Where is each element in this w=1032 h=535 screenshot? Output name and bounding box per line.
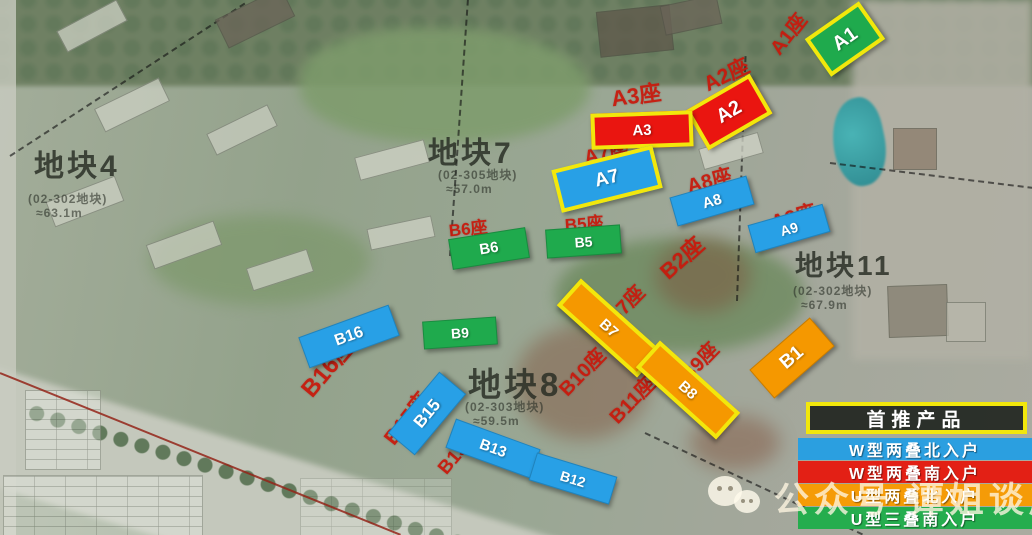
- legend-item-1: W型两叠北入户: [798, 438, 1032, 460]
- plot-code: (02-302地块): [28, 190, 107, 207]
- building-footprint: [946, 302, 986, 342]
- plot-name-地块11: 地块11: [795, 244, 893, 284]
- building-footprint: [887, 284, 949, 338]
- block-label: B8: [675, 377, 701, 402]
- building-footprint: [893, 128, 937, 170]
- block-B5[interactable]: B5: [545, 224, 622, 258]
- drawing-table: [25, 390, 101, 470]
- plot-name-地块4: 地块4: [34, 141, 120, 185]
- block-label: B12: [558, 467, 587, 490]
- watermark: 公众号 谭姐谈房: [708, 472, 1032, 523]
- block-label: A1: [828, 22, 862, 56]
- block-label: B9: [451, 324, 470, 341]
- block-label: A9: [778, 218, 800, 238]
- block-label: B13: [477, 435, 509, 460]
- plot-height: ≈57.0m: [446, 182, 493, 196]
- block-label: B1: [776, 342, 809, 375]
- block-label: B7: [596, 315, 622, 340]
- site-plan-map: 地块4(02-302地块)≈63.1m地块7(02-305地块)≈57.0m地块…: [0, 0, 1032, 535]
- block-A3[interactable]: A3: [590, 110, 693, 150]
- block-label: A2: [712, 96, 746, 129]
- plot-code: (02-305地块): [438, 166, 517, 183]
- block-label: B6: [478, 238, 500, 258]
- block-label: A3: [632, 121, 652, 139]
- block-label: B5: [574, 232, 593, 249]
- legend-title: 首推产品: [806, 402, 1027, 434]
- plot-code: (02-302地块): [793, 282, 872, 299]
- wechat-icon: [708, 476, 764, 520]
- drawing-table: [3, 475, 203, 535]
- drawing-sheet-edge: [0, 0, 16, 535]
- watermark-text: 公众号 谭姐谈房: [774, 472, 1032, 523]
- block-label: B15: [409, 395, 444, 432]
- plot-code: (02-303地块): [465, 398, 544, 415]
- lawn-area: [300, 28, 590, 143]
- block-label: A7: [593, 165, 622, 192]
- block-label: B16: [332, 323, 366, 350]
- plot-height: ≈67.9m: [801, 298, 848, 312]
- plot-height: ≈63.1m: [36, 206, 83, 220]
- drawing-table: [300, 478, 452, 535]
- block-label: A8: [700, 190, 723, 212]
- lawn-area: [150, 215, 370, 305]
- block-B9[interactable]: B9: [422, 316, 498, 349]
- plot-height: ≈59.5m: [473, 414, 520, 428]
